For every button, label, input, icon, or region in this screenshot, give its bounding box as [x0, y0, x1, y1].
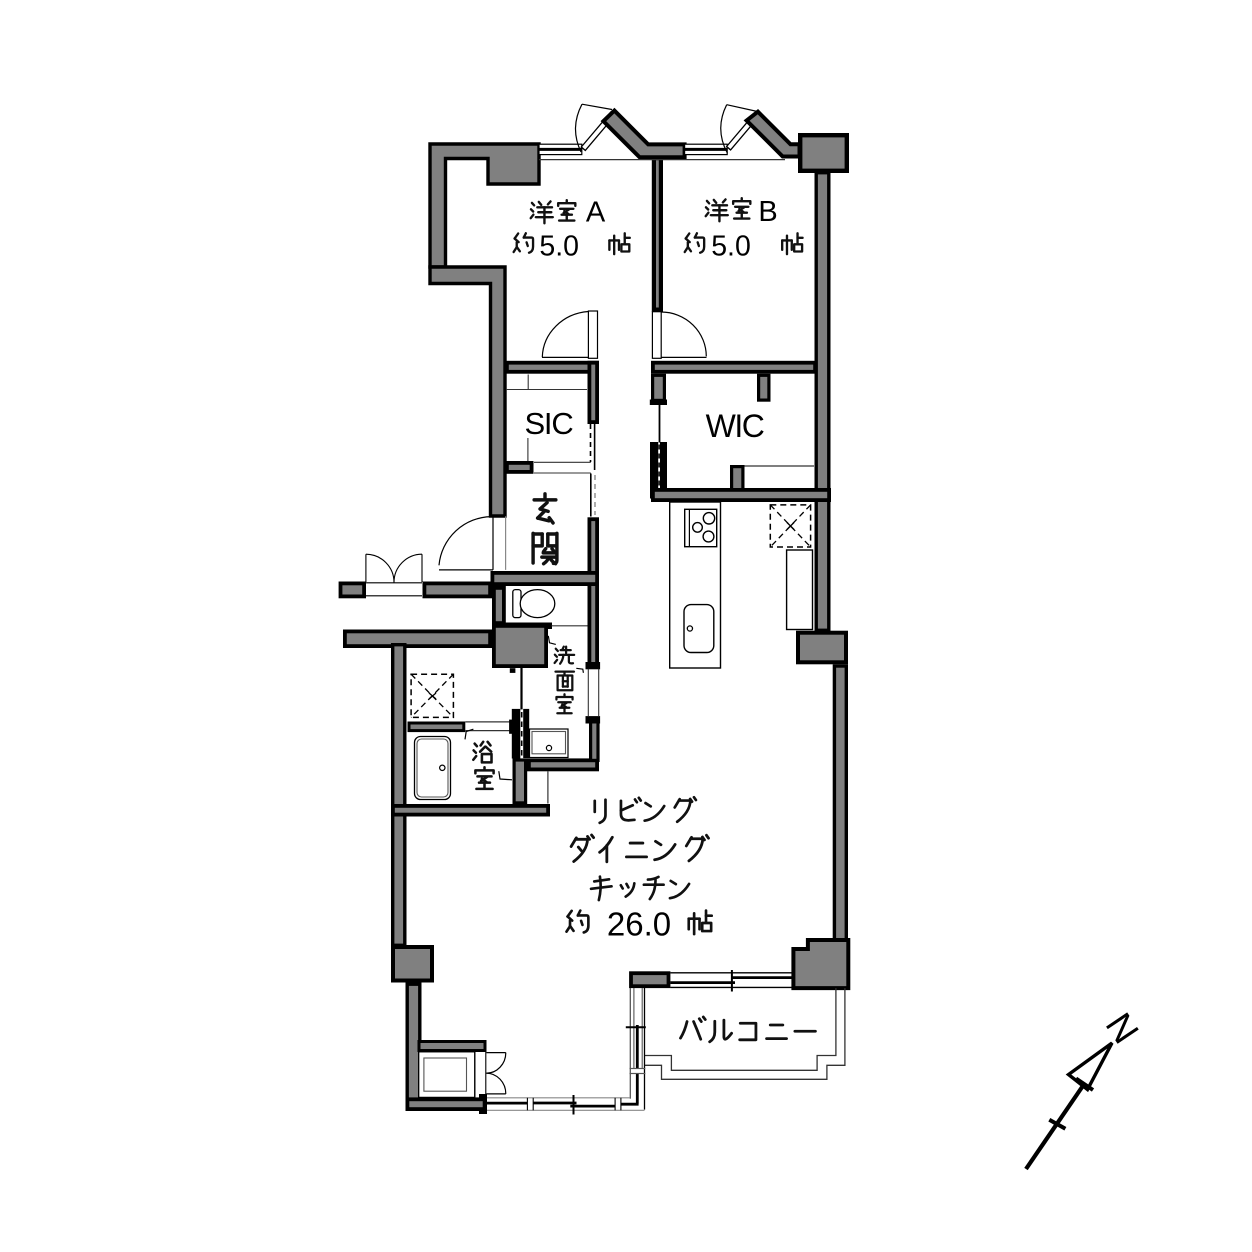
svg-text:WIC: WIC — [706, 408, 764, 444]
svg-text:26.0: 26.0 — [607, 906, 671, 943]
svg-text:SIC: SIC — [524, 406, 573, 441]
svg-text:5.0: 5.0 — [711, 231, 751, 263]
svg-text:5.0: 5.0 — [539, 231, 579, 263]
svg-text:B: B — [758, 196, 777, 228]
svg-text:A: A — [586, 197, 606, 229]
